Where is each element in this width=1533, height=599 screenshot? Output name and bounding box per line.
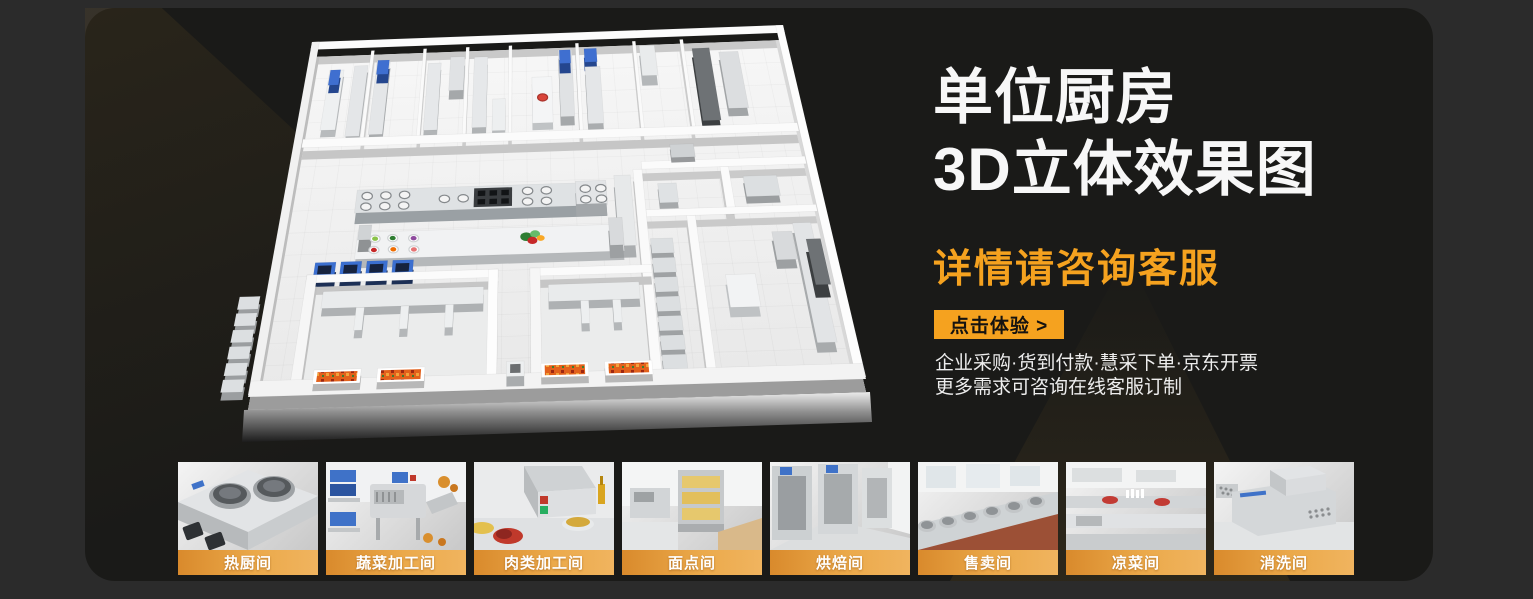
selling-image bbox=[918, 462, 1058, 550]
room-thumbnails: 热厨间 蔬菜加工间 bbox=[178, 462, 1354, 575]
thumbnail-label: 烘焙间 bbox=[770, 550, 910, 575]
consult-heading: 详情请咨询客服 bbox=[933, 250, 1220, 289]
pastry-illustration bbox=[622, 462, 762, 550]
washing-image bbox=[1214, 462, 1354, 550]
kitchen-banner: 单位厨房 3D立体效果图 详情请咨询客服 点击体验 > 企业采购·货到付款·慧采… bbox=[0, 0, 1533, 599]
hot-kitchen-image bbox=[178, 462, 318, 550]
thumbnail-label: 肉类加工间 bbox=[474, 550, 614, 575]
hero-title-line1: 单位厨房 bbox=[933, 68, 1177, 128]
thumbnail-card-selling[interactable]: 售卖间 bbox=[918, 462, 1058, 575]
thumbnail-card-hot-kitchen[interactable]: 热厨间 bbox=[178, 462, 318, 575]
hero-title-line2: 3D立体效果图 bbox=[933, 140, 1317, 200]
kitchen-floor-plan-3d bbox=[150, 5, 920, 475]
cta-button[interactable]: 点击体验 > bbox=[934, 310, 1064, 339]
vegetable-processing-illustration bbox=[326, 462, 466, 550]
vegetable-processing-image bbox=[326, 462, 466, 550]
meat-processing-illustration bbox=[474, 462, 614, 550]
thumbnail-card-pastry[interactable]: 面点间 bbox=[622, 462, 762, 575]
baking-illustration bbox=[770, 462, 910, 550]
thumbnail-label: 售卖间 bbox=[918, 550, 1058, 575]
thumbnail-card-baking[interactable]: 烘焙间 bbox=[770, 462, 910, 575]
thumbnail-card-vegetable-processing[interactable]: 蔬菜加工间 bbox=[326, 462, 466, 575]
pastry-image bbox=[622, 462, 762, 550]
thumbnail-label: 蔬菜加工间 bbox=[326, 550, 466, 575]
info-line2: 更多需求可咨询在线客服订制 bbox=[935, 376, 1182, 400]
cold-dish-illustration bbox=[1066, 462, 1206, 550]
thumbnail-label: 热厨间 bbox=[178, 550, 318, 575]
meat-processing-image bbox=[474, 462, 614, 550]
thumbnail-label: 面点间 bbox=[622, 550, 762, 575]
info-line1: 企业采购·货到付款·慧采下单·京东开票 bbox=[935, 352, 1258, 376]
washing-illustration bbox=[1214, 462, 1354, 550]
cold-dish-image bbox=[1066, 462, 1206, 550]
thumbnail-card-meat-processing[interactable]: 肉类加工间 bbox=[474, 462, 614, 575]
thumbnail-card-washing[interactable]: 消洗间 bbox=[1214, 462, 1354, 575]
hot-kitchen-illustration bbox=[178, 462, 318, 550]
selling-illustration bbox=[918, 462, 1058, 550]
thumbnail-label: 消洗间 bbox=[1214, 550, 1354, 575]
thumbnail-card-cold-dish[interactable]: 凉菜间 bbox=[1066, 462, 1206, 575]
baking-image bbox=[770, 462, 910, 550]
thumbnail-label: 凉菜间 bbox=[1066, 550, 1206, 575]
